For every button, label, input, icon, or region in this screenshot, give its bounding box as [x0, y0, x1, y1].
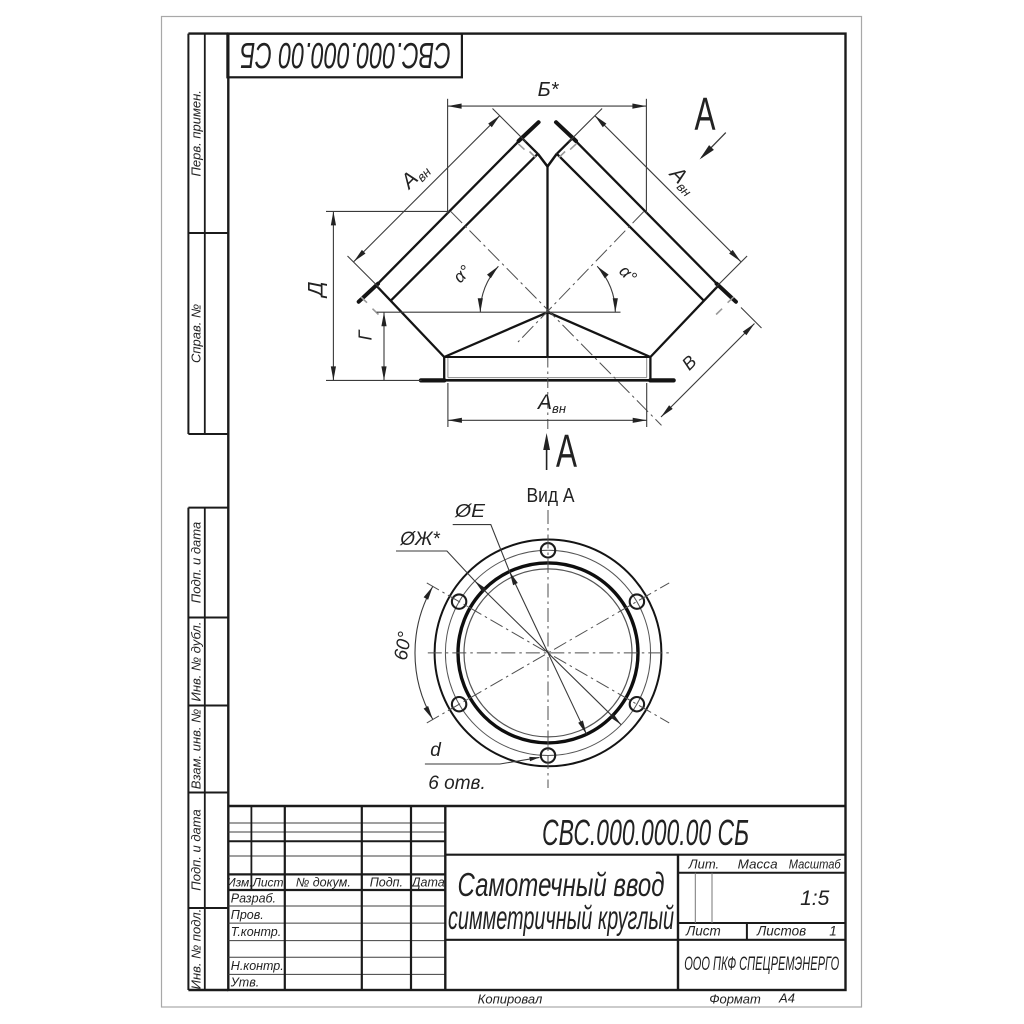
svg-text:Лист: Лист [685, 924, 721, 939]
svg-text:Подп. и дата: Подп. и дата [189, 522, 204, 603]
svg-text:Т.контр.: Т.контр. [231, 925, 281, 939]
svg-text:Взам. инв. №: Взам. инв. № [189, 709, 204, 789]
svg-text:Масса: Масса [738, 857, 778, 872]
svg-text:Инв. № подл.: Инв. № подл. [189, 909, 204, 990]
svg-text:Масштаб: Масштаб [789, 857, 842, 872]
svg-text:Дата: Дата [410, 876, 445, 890]
svg-text:1: 1 [829, 924, 837, 939]
svg-text:А: А [695, 88, 716, 140]
svg-text:6 отв.: 6 отв. [428, 773, 485, 794]
svg-text:d: d [430, 740, 442, 761]
svg-text:Справ. №: Справ. № [189, 304, 204, 363]
svg-text:Самотечный ввод: Самотечный ввод [458, 866, 665, 903]
svg-text:Лист: Лист [252, 876, 284, 890]
svg-text:А: А [556, 425, 577, 477]
svg-text:ØЖ*: ØЖ* [399, 529, 440, 550]
svg-text:Б*: Б* [538, 79, 560, 101]
svg-text:Формат: Формат [709, 992, 761, 1007]
svg-text:Пров.: Пров. [231, 908, 264, 922]
svg-text:1:5: 1:5 [800, 887, 830, 910]
svg-text:Вид А: Вид А [527, 485, 576, 507]
svg-text:Разраб.: Разраб. [231, 892, 276, 906]
svg-text:Н.контр.: Н.контр. [231, 959, 284, 973]
svg-text:Инв. № дубл.: Инв. № дубл. [189, 622, 204, 702]
svg-text:Подп.: Подп. [370, 876, 403, 890]
svg-text:Д: Д [305, 281, 328, 298]
svg-text:симметричный круглый: симметричный круглый [448, 899, 674, 936]
svg-text:Копировал: Копировал [478, 992, 543, 1007]
svg-text:Изм.: Изм. [227, 876, 253, 890]
svg-text:Лит.: Лит. [688, 857, 719, 872]
svg-text:ØЕ: ØЕ [454, 500, 486, 521]
svg-text:Листов: Листов [756, 924, 806, 939]
svg-text:ООО ПКФ СПЕЦРЕМЭНЕРГО: ООО ПКФ СПЕЦРЕМЭНЕРГО [684, 954, 839, 975]
svg-text:СВС.000.000.00 СБ: СВС.000.000.00 СБ [240, 35, 451, 76]
svg-text:№ докум.: № докум. [296, 876, 351, 890]
svg-text:Перв. примен.: Перв. примен. [189, 90, 204, 176]
svg-text:Утв.: Утв. [230, 976, 259, 990]
svg-text:Подп. и дата: Подп. и дата [189, 809, 204, 890]
svg-text:СВС.000.000.00 СБ: СВС.000.000.00 СБ [542, 812, 749, 853]
svg-text:А4: А4 [778, 991, 795, 1006]
svg-text:Г: Г [356, 329, 376, 340]
